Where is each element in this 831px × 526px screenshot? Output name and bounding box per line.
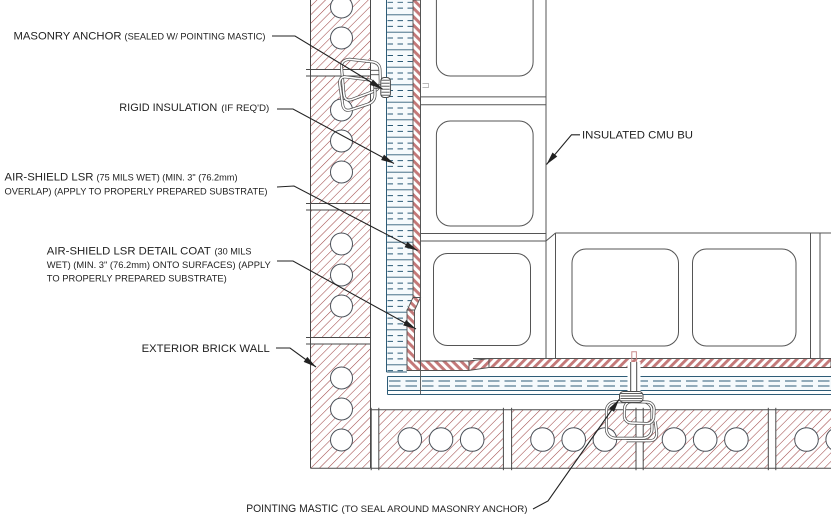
svg-text:WET) (MIN. 3" (76.2mm) ONTO SU: WET) (MIN. 3" (76.2mm) ONTO SURFACES) (A… (47, 260, 272, 271)
svg-text:AIR-SHIELD LSR DETAIL COAT: AIR-SHIELD LSR DETAIL COAT (47, 246, 211, 258)
svg-text:OVERLAP) (APPLY TO PROPERLY PR: OVERLAP) (APPLY TO PROPERLY PREPARED SUB… (5, 187, 268, 198)
svg-text:AIR-SHIELD LSR: AIR-SHIELD LSR (5, 172, 94, 184)
svg-text:RIGID INSULATION: RIGID INSULATION (119, 102, 217, 114)
svg-text:(SEALED W/ POINTING MASTIC): (SEALED W/ POINTING MASTIC) (125, 32, 266, 43)
svg-text:POINTING MASTIC: POINTING MASTIC (246, 503, 338, 515)
svg-text:(IF REQ'D): (IF REQ'D) (221, 103, 269, 114)
svg-text:(30 MILS: (30 MILS (215, 247, 252, 258)
svg-text:INSULATED CMU BU: INSULATED CMU BU (582, 130, 693, 142)
svg-text:(75 MILS WET) (MIN. 3" (76.2mm: (75 MILS WET) (MIN. 3" (76.2mm) (97, 173, 238, 184)
svg-text:(TO SEAL AROUND MASONRY ANCHOR: (TO SEAL AROUND MASONRY ANCHOR) (342, 504, 528, 515)
svg-text:TO PROPERLY PREPARED SUBSTRATE: TO PROPERLY PREPARED SUBSTRATE) (47, 274, 227, 285)
svg-text:EXTERIOR BRICK WALL: EXTERIOR BRICK WALL (142, 343, 270, 355)
svg-text:MASONRY ANCHOR: MASONRY ANCHOR (14, 31, 122, 43)
